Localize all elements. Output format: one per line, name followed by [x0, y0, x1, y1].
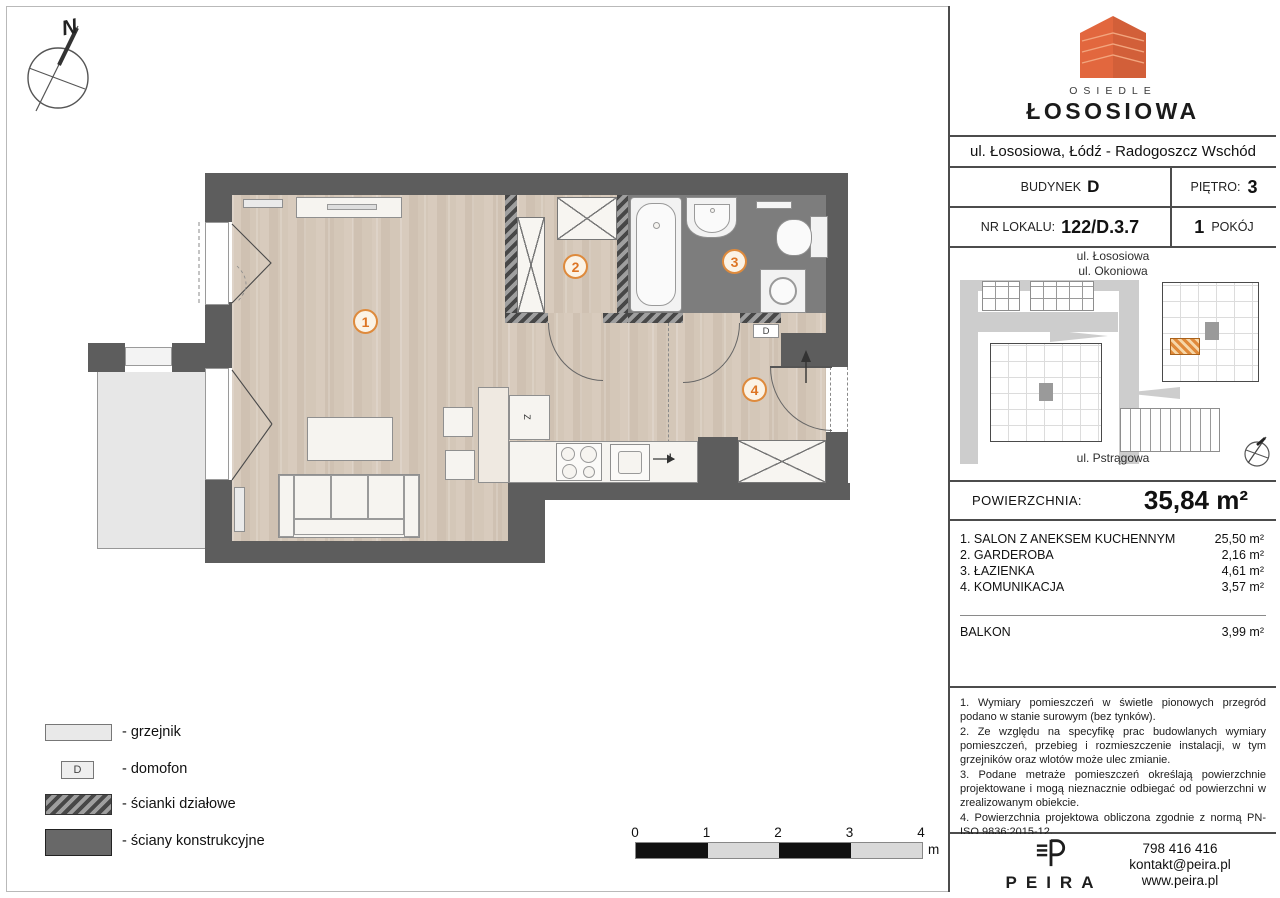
- sitemap-compass-icon: [1242, 432, 1272, 470]
- unit-location-highlight: [1170, 338, 1200, 355]
- room-name: 4. KOMUNIKACJA: [960, 579, 1064, 595]
- plan-linework: [90, 170, 862, 572]
- room-name: 3. ŁAZIENKA: [960, 563, 1034, 579]
- scale-tick: 4: [917, 825, 925, 840]
- estate-logo-icon: [1080, 16, 1146, 78]
- room-marker-wardrobe: 2: [563, 254, 588, 279]
- room-name: 2. GARDEROBA: [960, 547, 1054, 563]
- legend-label-structural: - ściany konstrukcyjne: [122, 833, 265, 849]
- logo-osiedle-text: OSIEDLE: [1069, 85, 1157, 97]
- legend-label-intercom: - domofon: [122, 761, 187, 777]
- street-label-top1: ul. Łososiowa: [950, 249, 1276, 263]
- room-marker-bathroom: 3: [722, 249, 747, 274]
- sitemap-box: ul. Łososiowa ul. Okoniowa ul. Pstrą: [950, 248, 1276, 482]
- scale-segment-light: [851, 843, 923, 858]
- legend-swatch-partition: [45, 794, 112, 815]
- note: 1. Wymiary pomieszczeń w świetle pionowy…: [960, 696, 1266, 724]
- room-name: 1. SALON Z ANEKSEM KUCHENNYM: [960, 531, 1175, 547]
- footer-box: PEIRA 798 416 416 kontakt@peira.pl www.p…: [950, 834, 1276, 892]
- balcony-row: BALKON 3,99 m²: [950, 624, 1276, 640]
- unit-label: NR LOKALU:: [981, 220, 1055, 234]
- building-cell: BUDYNEK D: [950, 168, 1170, 206]
- address-text: ul. Łososiowa, Łódź - Radogoszcz Wschód: [970, 143, 1256, 160]
- room-list-row: 4. KOMUNIKACJA 3,57 m²: [950, 579, 1276, 595]
- room-list-row: 3. ŁAZIENKA 4,61 m²: [950, 563, 1276, 579]
- road: [960, 280, 978, 464]
- building-footprint-west: [990, 343, 1102, 442]
- unit-value: 122/D.3.7: [1061, 217, 1139, 238]
- building-core: [1039, 383, 1053, 401]
- floorplan-sheet: N: [0, 0, 1280, 898]
- room-marker-living: 1: [353, 309, 378, 334]
- legend-swatch-radiator: [45, 724, 112, 741]
- scale-tick: 3: [846, 825, 854, 840]
- note: 3. Podane metraże pomieszczeń określają …: [960, 768, 1266, 810]
- floor-value: 3: [1248, 177, 1258, 198]
- info-panel: OSIEDLE ŁOSOSIOWA ul. Łososiowa, Łódź - …: [948, 6, 1276, 892]
- contact-email[interactable]: kontakt@peira.pl: [1100, 857, 1260, 873]
- balcony-area: 3,99 m²: [1222, 624, 1264, 640]
- legend-intercom-symbol: D: [74, 764, 82, 776]
- road: [960, 312, 1118, 332]
- floor-cell: PIĘTRO: 3: [1170, 168, 1276, 206]
- peira-logo-icon: [1028, 836, 1074, 868]
- parking-lot: [1120, 408, 1220, 452]
- room-area: 25,50 m²: [1215, 531, 1264, 547]
- balcony-name: BALKON: [960, 624, 1011, 640]
- scale-tick: 2: [774, 825, 782, 840]
- unit-box: NR LOKALU: 122/D.3.7 1 POKÓJ: [950, 208, 1276, 248]
- legend-swatch-intercom: D: [61, 761, 94, 779]
- contact-phone: 798 416 416: [1100, 841, 1260, 857]
- compass-icon: [18, 14, 102, 126]
- note: 2. Ze względu na specyfikę prac budowlan…: [960, 725, 1266, 767]
- legend-label-partition: - ścianki działowe: [122, 796, 236, 812]
- developer-brand: PEIRA: [1002, 873, 1106, 893]
- building-floor-box: BUDYNEK D PIĘTRO: 3: [950, 168, 1276, 208]
- room-list-row: 1. SALON Z ANEKSEM KUCHENNYM 25,50 m²: [950, 531, 1276, 547]
- developer-logo: PEIRA: [996, 836, 1106, 893]
- rooms-count: 1: [1194, 217, 1204, 238]
- scale-tick: 1: [703, 825, 711, 840]
- room-area: 4,61 m²: [1222, 563, 1264, 579]
- parking-lot: [982, 281, 1020, 311]
- floor-label: PIĘTRO:: [1190, 180, 1240, 194]
- rooms-word: POKÓJ: [1211, 220, 1253, 234]
- parking-lot: [1030, 281, 1094, 311]
- street-label-bottom: ul. Pstrągowa: [950, 451, 1276, 465]
- room-marker-hall: 4: [742, 377, 767, 402]
- notes-box: 1. Wymiary pomieszczeń w świetle pionowy…: [950, 688, 1276, 834]
- scale-segment-light: [708, 843, 780, 858]
- total-area-label: POWIERZCHNIA:: [972, 493, 1082, 508]
- rooms-list-box: 1. SALON Z ANEKSEM KUCHENNYM 25,50 m² 2.…: [950, 521, 1276, 688]
- scale-segment-dark: [636, 843, 708, 858]
- scalebar-ticks: 0 1 2 3 4: [635, 825, 921, 841]
- sitemap: ul. Łososiowa ul. Okoniowa ul. Pstrą: [950, 248, 1276, 480]
- building-value: D: [1087, 177, 1099, 197]
- unit-cell: NR LOKALU: 122/D.3.7: [950, 208, 1170, 246]
- building-core: [1205, 322, 1219, 340]
- balcony-divider: [960, 615, 1266, 616]
- building-footprint-east: [1162, 282, 1259, 382]
- logo-box: OSIEDLE ŁOSOSIOWA: [950, 6, 1276, 137]
- room-list-row: 2. GARDEROBA 2,16 m²: [950, 547, 1276, 563]
- total-area-value: 35,84 m²: [1144, 485, 1248, 516]
- legend-swatch-structural: [45, 829, 112, 856]
- scale-tick: 0: [631, 825, 639, 840]
- building-label: BUDYNEK: [1021, 180, 1081, 194]
- address-box: ul. Łososiowa, Łódź - Radogoszcz Wschód: [950, 137, 1276, 168]
- room-area: 2,16 m²: [1222, 547, 1264, 563]
- scale-segment-dark: [779, 843, 851, 858]
- legend-label-radiator: - grzejnik: [122, 724, 181, 740]
- scalebar-unit: m: [928, 842, 939, 857]
- rooms-cell: 1 POKÓJ: [1170, 208, 1276, 246]
- scalebar: [635, 842, 923, 859]
- street-label-top2: ul. Okoniowa: [950, 264, 1276, 278]
- logo-name-text: ŁOSOSIOWA: [1026, 98, 1199, 125]
- total-area-box: POWIERZCHNIA: 35,84 m²: [950, 482, 1276, 521]
- contact-website[interactable]: www.peira.pl: [1100, 873, 1260, 889]
- room-area: 3,57 m²: [1222, 579, 1264, 595]
- contact-block: 798 416 416 kontakt@peira.pl www.peira.p…: [1100, 841, 1260, 889]
